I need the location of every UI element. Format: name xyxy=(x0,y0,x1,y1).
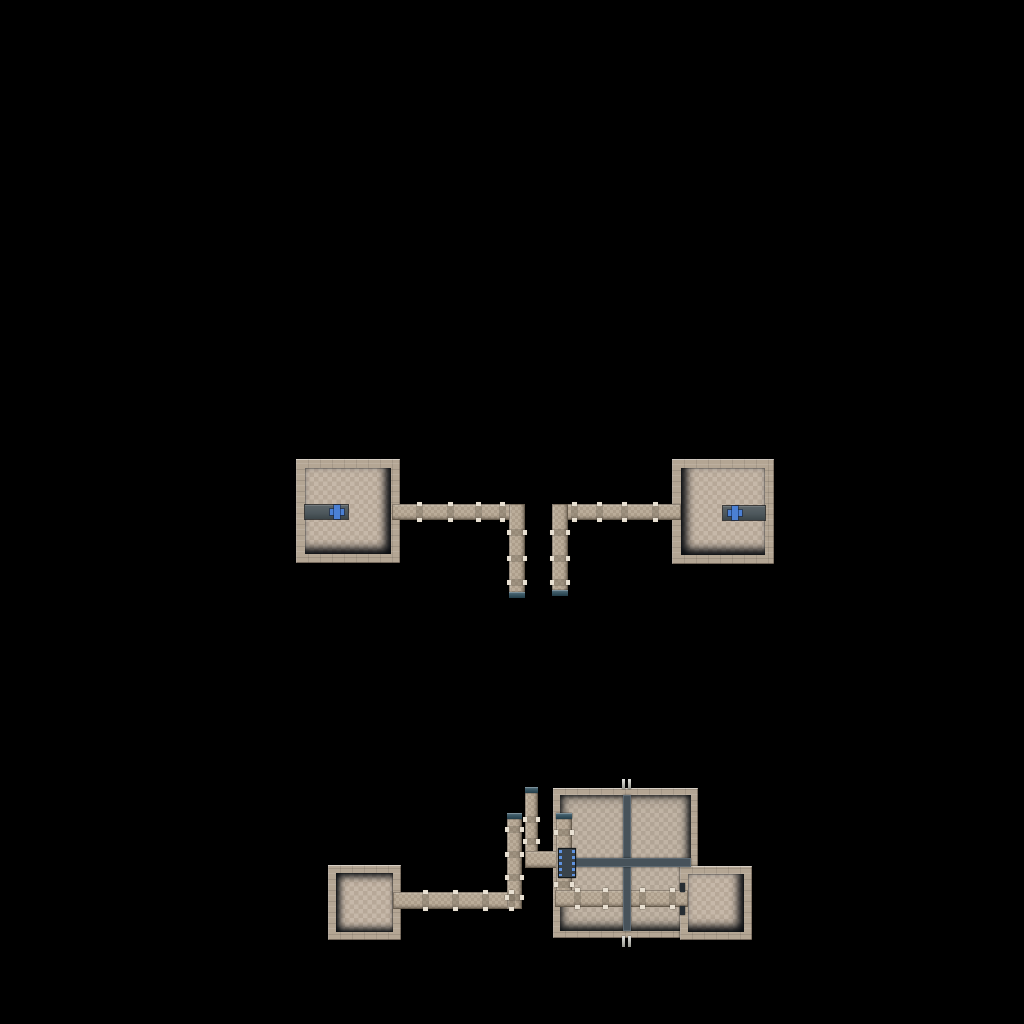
floor-beam-horizontal xyxy=(560,858,691,867)
far-left-corridor-vertical-joint-2 xyxy=(505,875,524,880)
far-left-corridor-vertical-joint-3 xyxy=(505,895,524,900)
game-viewport[interactable] xyxy=(0,0,1024,1024)
top-left-corridor-horizontal-joint-1 xyxy=(448,502,453,522)
top-right-corridor-vertical-joint-2 xyxy=(550,580,570,585)
beam-post-bottom-right xyxy=(628,936,631,947)
elbow-corridor-vertical-joint-1 xyxy=(523,839,540,844)
top-left-corridor-horizontal-joint-2 xyxy=(476,502,481,522)
top-right-corridor-vertical-joint-0 xyxy=(550,530,570,535)
interior-corridor-vertical-end-cap xyxy=(556,813,572,819)
bottom-left-corridor-horizontal xyxy=(393,892,522,909)
far-left-corridor-vertical xyxy=(507,813,522,909)
bottom-left-room xyxy=(328,865,401,940)
beam-post-top-left xyxy=(622,779,625,789)
blue-doorway xyxy=(558,848,576,878)
elbow-corridor-vertical-end-cap xyxy=(525,787,538,793)
top-left-corridor-vertical xyxy=(509,504,525,598)
top-right-corridor-vertical-end-cap xyxy=(552,590,568,596)
interior-corridor-vertical-joint-1 xyxy=(554,882,574,887)
interior-corridor-vertical-joint-0 xyxy=(554,830,574,835)
doorframe-upper xyxy=(680,883,685,892)
top-left-corridor-horizontal-joint-0 xyxy=(417,502,422,522)
elbow-corridor-horizontal xyxy=(525,851,560,868)
top-right-corridor-vertical xyxy=(552,504,568,596)
bottom-left-corridor-horizontal-joint-2 xyxy=(483,890,488,911)
bottom-left-corridor-horizontal-joint-3 xyxy=(509,890,514,911)
top-right-corridor-horizontal-joint-1 xyxy=(597,502,602,522)
map-scene xyxy=(0,0,1024,1024)
far-left-corridor-vertical-joint-1 xyxy=(505,852,524,857)
top-left-corridor-vertical-joint-0 xyxy=(507,530,527,535)
interior-corridor-horizontal xyxy=(555,890,688,907)
interior-corridor-horizontal-joint-1 xyxy=(603,888,608,909)
top-right-corridor-horizontal-joint-0 xyxy=(572,502,577,522)
bottom-right-room-floor xyxy=(688,874,744,932)
top-right-corridor-horizontal-joint-3 xyxy=(653,502,658,522)
top-left-corridor-vertical-joint-2 xyxy=(507,580,527,585)
interior-corridor-horizontal-joint-0 xyxy=(575,888,580,909)
bottom-right-room xyxy=(680,866,752,940)
beam-post-bottom-left xyxy=(622,936,625,947)
far-left-corridor-vertical-joint-0 xyxy=(505,827,524,832)
top-left-corridor-vertical-joint-1 xyxy=(507,556,527,561)
top-left-corridor-horizontal xyxy=(392,504,525,520)
bottom-left-room-floor xyxy=(336,873,393,932)
right-blue-cross-marker xyxy=(728,506,742,520)
top-left-corridor-vertical-end-cap xyxy=(509,592,525,598)
bottom-left-corridor-horizontal-joint-1 xyxy=(453,890,458,911)
top-right-corridor-horizontal xyxy=(553,504,681,520)
doorframe-lower xyxy=(680,906,685,915)
bottom-left-corridor-horizontal-joint-0 xyxy=(423,890,428,911)
far-left-corridor-vertical-end-cap xyxy=(507,813,522,819)
beam-post-top-right xyxy=(628,779,631,789)
top-right-corridor-horizontal-joint-2 xyxy=(622,502,627,522)
interior-corridor-horizontal-joint-3 xyxy=(670,888,675,909)
top-left-corridor-horizontal-joint-3 xyxy=(500,502,505,522)
left-blue-cross-marker xyxy=(330,505,344,519)
top-right-corridor-vertical-joint-1 xyxy=(550,556,570,561)
interior-corridor-horizontal-joint-2 xyxy=(640,888,645,909)
elbow-corridor-vertical-joint-0 xyxy=(523,817,540,822)
